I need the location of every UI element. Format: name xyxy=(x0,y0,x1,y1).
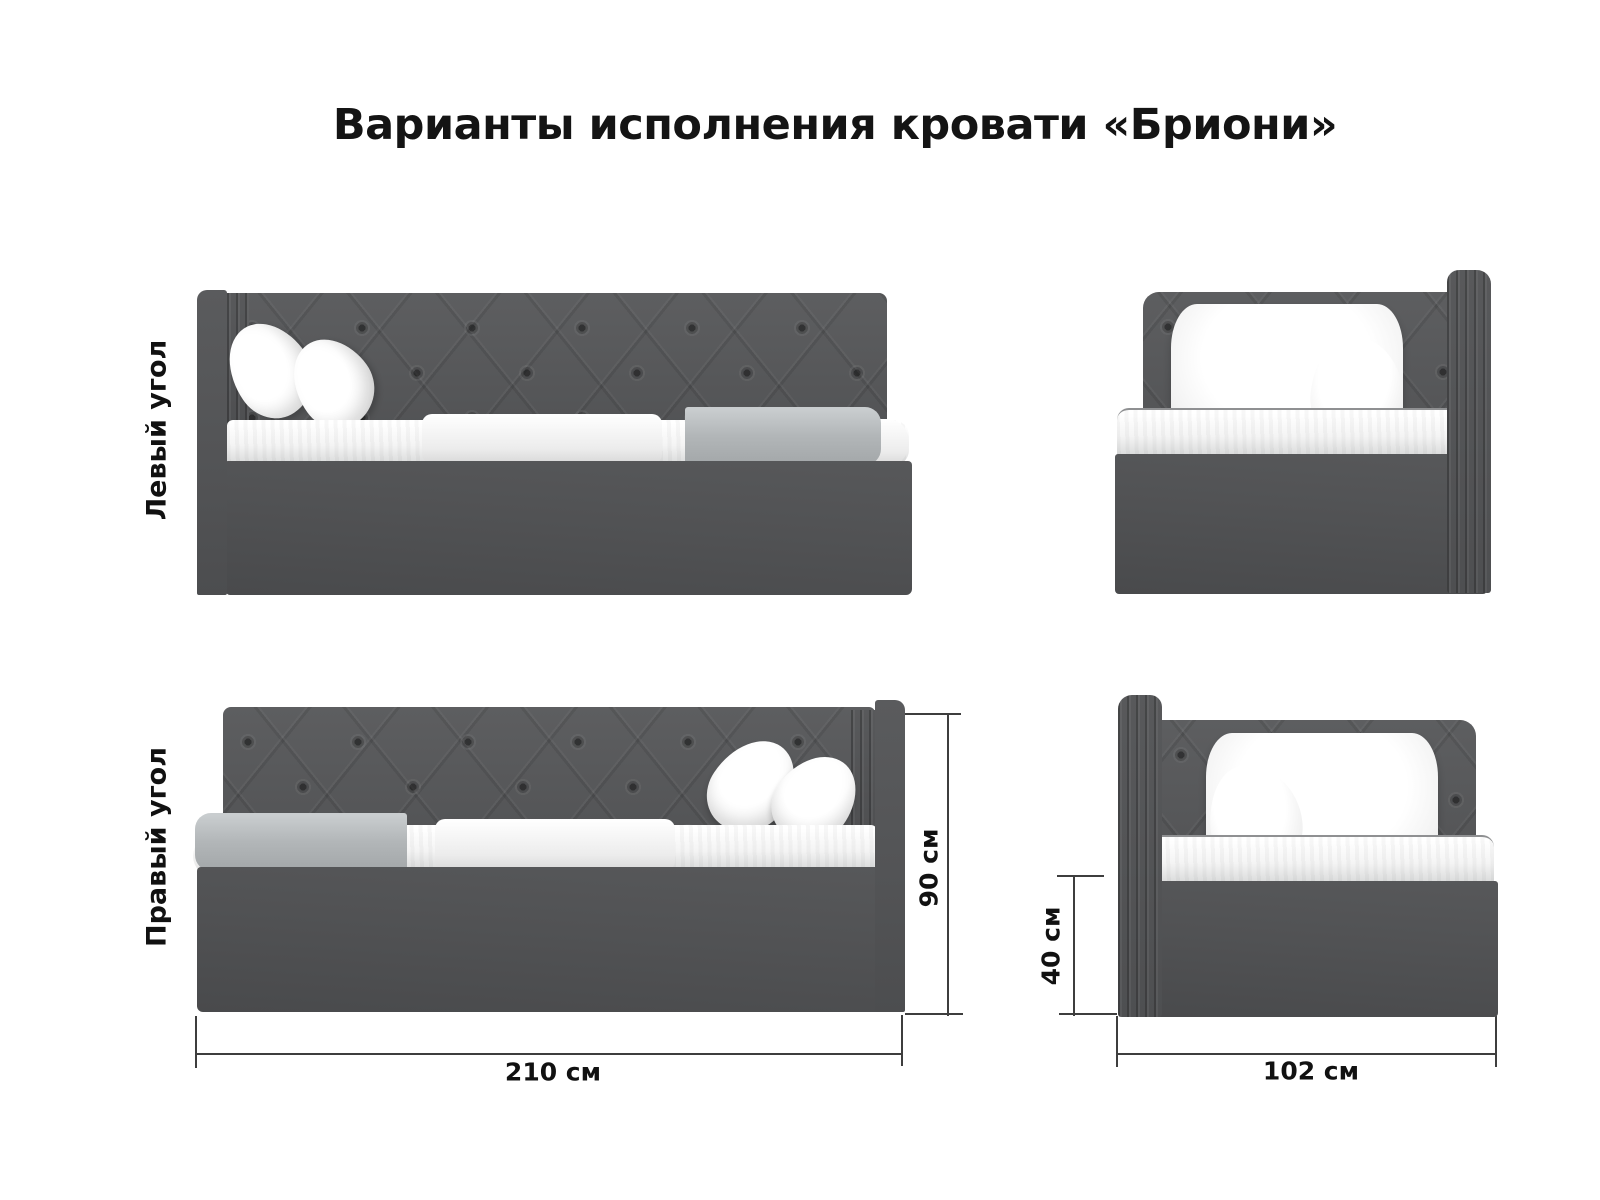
bed-blanket xyxy=(685,407,881,465)
dimension-line xyxy=(1073,876,1075,1016)
dimension-line xyxy=(1117,1053,1497,1055)
bed-right-corner-side-view xyxy=(195,695,905,1017)
bed-mattress xyxy=(1158,835,1494,885)
dimension-height-label: 90 см xyxy=(915,829,944,908)
dimension-tick xyxy=(195,1016,197,1068)
row-label-right-corner: Правый угол xyxy=(142,747,173,947)
bed-side-panel xyxy=(1118,695,1162,1017)
dimension-width-label: 102 см xyxy=(1263,1057,1359,1086)
bed-left-corner-front-view xyxy=(1115,270,1500,595)
dimension-length-label: 210 см xyxy=(505,1058,601,1087)
bed-panel-pleats xyxy=(851,710,875,840)
bed-base xyxy=(1115,454,1487,594)
dimension-tick xyxy=(1059,1013,1117,1015)
dimension-line xyxy=(196,1053,903,1055)
bed-side-panel xyxy=(197,290,227,595)
product-diagram: Варианты исполнения кровати «Бриони» Лев… xyxy=(0,0,1600,1200)
bed-base xyxy=(226,461,912,595)
dimension-line xyxy=(947,714,949,1016)
bed-blanket xyxy=(195,813,407,871)
dimension-tick xyxy=(1116,1016,1118,1067)
bed-mattress xyxy=(1117,408,1461,458)
dimension-tick xyxy=(1057,875,1104,877)
dimension-tick xyxy=(1495,1016,1497,1067)
bed-side-panel xyxy=(875,700,905,1012)
bed-duvet-fold xyxy=(422,414,662,464)
bed-left-corner-side-view xyxy=(197,285,915,597)
bed-duvet-fold xyxy=(435,819,675,871)
bed-right-corner-front-view xyxy=(1118,695,1503,1019)
dimension-tick xyxy=(901,1015,903,1066)
dimension-base-height-label: 40 см xyxy=(1037,907,1066,986)
bed-base xyxy=(1128,881,1498,1017)
bed-side-panel xyxy=(1447,270,1491,593)
bed-base xyxy=(197,867,899,1012)
dimension-tick xyxy=(903,713,961,715)
row-label-left-corner: Левый угол xyxy=(142,340,173,521)
page-title: Варианты исполнения кровати «Бриони» xyxy=(333,100,1337,150)
dimension-tick xyxy=(905,1013,963,1015)
